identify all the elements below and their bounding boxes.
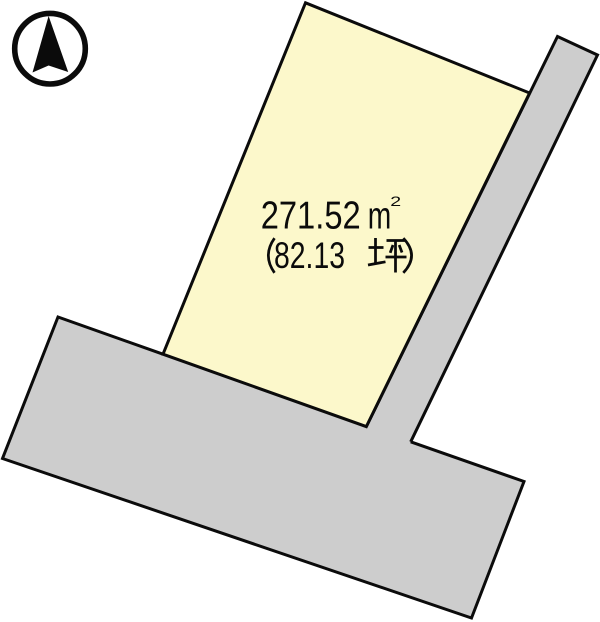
svg-text:271.52: 271.52 <box>261 195 361 238</box>
svg-text:2: 2 <box>390 194 401 209</box>
svg-text:82.13: 82.13 <box>274 235 345 276</box>
svg-text:m: m <box>368 195 392 237</box>
